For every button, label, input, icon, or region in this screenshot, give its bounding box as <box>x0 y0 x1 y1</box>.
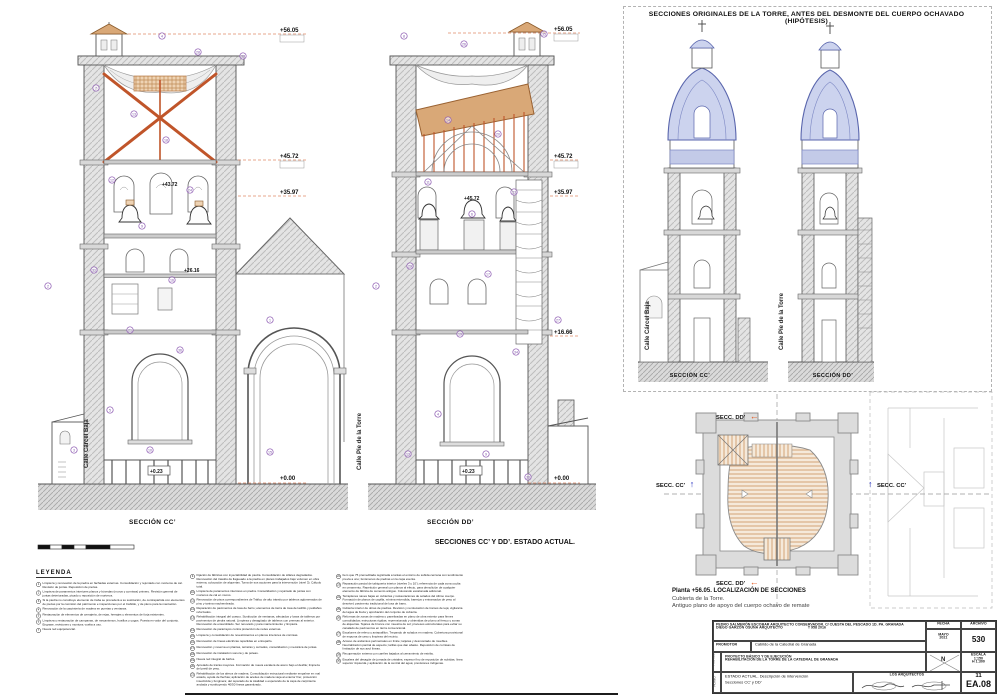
note-item: 21 Rehabilitación de los aleros de mader… <box>190 672 322 687</box>
svg-text:13: 13 <box>406 452 410 456</box>
section-arrow-blue-right-icon: ↑ <box>868 479 873 489</box>
north-arrow-icon: N <box>927 653 961 672</box>
street-label-pie-torre: Calle Pie de la Torre <box>357 413 363 470</box>
plano-line1: ESTADO ACTUAL. Descripción de intervenci… <box>725 675 849 680</box>
legend-item-number: 2 <box>36 591 41 596</box>
note-number: 18 <box>190 652 195 657</box>
note-item: 13 Rehabilitación integral del cuerpo. S… <box>190 616 322 627</box>
svg-text:9: 9 <box>141 224 143 228</box>
note-number: 24 <box>336 595 341 600</box>
note-number: 15 <box>190 634 195 639</box>
hyp-section-cc-drawing <box>638 18 768 386</box>
svg-text:9: 9 <box>485 452 487 456</box>
svg-text:7: 7 <box>95 86 97 90</box>
promotor-value: Cabildo de la Catedral de Granada <box>755 643 923 648</box>
location-plan-drawing <box>658 388 998 616</box>
svg-text:28: 28 <box>196 50 200 54</box>
note-number: 13 <box>190 616 195 621</box>
note-item: 10 Limpieza de paramentos interiores en … <box>190 590 322 598</box>
note-number: 16 <box>190 640 195 645</box>
sheet-number-cell: 11 EA.08 <box>961 672 996 693</box>
main-caption: SECCIONES CC’ Y DD’. ESTADO ACTUAL. <box>330 539 575 546</box>
svg-text:20: 20 <box>496 132 500 136</box>
svg-text:6: 6 <box>471 212 473 216</box>
note-text: Limpieza y consolidación de revestimient… <box>197 634 323 639</box>
note-text: Escalera del desagüe de jornada de crist… <box>343 658 465 666</box>
promotor-label-cell: PROMOTOR <box>713 641 751 652</box>
archivo-value: 530 <box>962 635 995 644</box>
note-number: 19 <box>190 658 195 663</box>
note-item: 29 Recuperación externa con carriles baj… <box>336 652 464 657</box>
archivo-label: ARCHIVO <box>962 622 995 626</box>
notes-column-3: 22 Ítem que 75 premeditada registrada a … <box>336 574 464 692</box>
note-item: 19 Nueva red integral de baños. <box>190 658 322 663</box>
note-item: 28 Acceso de andamios perimetrales en li… <box>336 640 464 651</box>
archivo-value-cell: 530 <box>961 629 996 652</box>
svg-text:4: 4 <box>437 412 439 416</box>
svg-text:5: 5 <box>109 408 111 412</box>
note-number: 29 <box>336 652 341 657</box>
legend-item-number: 4 <box>36 608 41 613</box>
legend-item-text: Si la piedra no constituye elemento de t… <box>43 599 187 607</box>
note-text: Rehabilitación integral del cuerpo. Sust… <box>197 616 323 627</box>
legend-item: 4 Renovación de la carpintería de madera… <box>36 608 186 613</box>
note-text: Renovación de instalación sonora y de po… <box>197 652 323 657</box>
architect2-role: ARQUITECTO <box>759 626 783 630</box>
drawing-sheet: +56.05 +45.72 +35.97 +26.16 +43.72 +0.23… <box>0 0 1000 700</box>
street-label-carcel-baja: Calle Cárcel Baja <box>84 419 90 468</box>
sec-cc-left-label: SECC. CC’ <box>656 483 685 489</box>
level-0-label: +0.00 <box>280 476 296 482</box>
legend-item-number: 6 <box>36 620 41 625</box>
svg-text:29: 29 <box>408 264 412 268</box>
section-arrow-blue-left-icon: ↑ <box>690 479 695 489</box>
svg-text:11: 11 <box>426 180 430 184</box>
north-cell: N <box>926 652 961 672</box>
legend-item-number: 3 <box>36 599 41 604</box>
escala-cell: ESCALA 1:150 H 1:300 <box>961 652 996 672</box>
signatures-icon <box>854 679 960 692</box>
svg-text:13: 13 <box>132 112 136 116</box>
legend-item: 3 Si la piedra no constituye elemento de… <box>36 599 186 607</box>
note-text: Renovación de líneas eléctricas repartid… <box>197 640 323 645</box>
plano-line2: Secciones CC’ y DD’ <box>725 681 849 686</box>
svg-text:2: 2 <box>375 284 377 288</box>
fecha-value-cell: MAYO 2021 <box>926 629 961 652</box>
section-cc-label: SECCIÓN CC’ <box>105 519 200 526</box>
legend-item-number: 7 <box>36 628 41 633</box>
svg-text:21: 21 <box>128 328 132 332</box>
note-text: Renovación y reserva en plantas, terraza… <box>197 646 323 651</box>
legend-item-text: Nueva red equipotencial. <box>43 628 187 633</box>
fecha-label: FECHA <box>927 622 960 626</box>
note-number: 17 <box>190 646 195 651</box>
sec-cc-right-label: SECC. CC’ <box>877 483 906 489</box>
proyecto-label: PROYECTO <box>713 660 716 666</box>
note-text: Reparación de pavimentos de losa de barr… <box>197 607 323 615</box>
svg-text:33: 33 <box>241 54 245 58</box>
svg-text:N: N <box>941 657 945 663</box>
notes-column-2: 9 Fijación de fábricas con inyectabilida… <box>190 574 322 692</box>
svg-text:2: 2 <box>47 284 49 288</box>
promotor-label: PROMOTOR <box>716 643 748 647</box>
note-number: 11 <box>190 599 195 604</box>
note-number: 20 <box>190 664 195 669</box>
svg-text:12: 12 <box>110 178 114 182</box>
svg-text:15: 15 <box>268 450 272 454</box>
note-number: 27 <box>336 632 341 637</box>
title-block: PEDRO SALMERÓN ESCOBAR ARQUITECTO CONSER… <box>712 620 997 694</box>
legend-item-text: Limpieza de paramentos interiores planos… <box>43 591 187 599</box>
note-item: 12 Reparación de pavimentos de losa de b… <box>190 607 322 615</box>
plan-arrow-cc-right: ↑ SECC. CC’ <box>868 474 906 492</box>
note-text: Cubierta interior de obras de piedras. R… <box>343 607 465 615</box>
legend-item-text: Restauración de elementos de cerrajería,… <box>43 614 187 619</box>
note-text: Apretado de trazas mayores. Formación de… <box>197 664 323 672</box>
plan-subtitle-1: Cubierta de la Torre. <box>672 596 932 602</box>
legend-item: 7 Nueva red equipotencial. <box>36 628 186 633</box>
svg-text:31: 31 <box>92 268 96 272</box>
svg-text:19: 19 <box>458 332 462 336</box>
note-number: 9 <box>190 574 195 579</box>
note-number: 23 <box>336 583 341 588</box>
section-dd-drawing: +56.05 +45.72 +35.97 +16.66 +45.72 +0.23… <box>368 22 596 512</box>
level-45-label: +45.72 <box>280 154 299 160</box>
proyecto-label-cell: PROYECTO <box>713 652 721 672</box>
fecha-year: 2021 <box>927 636 960 640</box>
svg-text:4: 4 <box>161 34 163 38</box>
note-item: 27 Escalones de relevo y antepalillos. T… <box>336 632 464 640</box>
note-item: 15 Limpieza y consolidación de revestimi… <box>190 634 322 639</box>
note-text: Reparación parcial de tabiquería interio… <box>343 583 465 594</box>
note-number: 14 <box>190 628 195 633</box>
note-text: Recuperación externa con carriles bajado… <box>343 652 465 657</box>
legend-item-number: 1 <box>36 582 41 587</box>
escala-value-2: H 1:300 <box>962 660 995 664</box>
note-number: 26 <box>336 616 341 621</box>
legend-title: LEYENDA <box>36 570 72 578</box>
note-number: 21 <box>190 672 195 677</box>
level-26-label: +26.16 <box>184 268 200 274</box>
proyecto-line2: REHABILITACIÓN DE LA TORRE DE LA CATEDRA… <box>725 658 921 662</box>
note-text: Escalones de relevo y antepalillos. Trep… <box>343 632 465 640</box>
archivo-header-cell: ARCHIVO <box>961 621 996 629</box>
hyp-section-cc-label: SECCIÓN CC’ <box>655 373 725 379</box>
legend-item: 5 Restauración de elementos de cerrajerí… <box>36 614 186 619</box>
svg-text:3: 3 <box>73 448 75 452</box>
sheet-code: EA.08 <box>962 679 995 689</box>
architect2-name: DIEGO GARZÓN OSUNA <box>716 626 758 630</box>
svg-text:14: 14 <box>446 118 450 122</box>
note-text: Rehabilitación de los aleros de madera. … <box>197 672 323 687</box>
bottom-rule <box>185 693 618 695</box>
svg-text:36: 36 <box>178 348 182 352</box>
fecha-header-cell: FECHA <box>926 621 961 629</box>
note-item: 11 Renovación de pisos correspondientes … <box>190 599 322 607</box>
level-0-label-dd: +0.00 <box>554 476 570 482</box>
note-number: 30 <box>336 658 341 663</box>
level-16-label-dd: +16.66 <box>554 330 573 336</box>
legend-item: 6 Limpieza y restauración de campanas, d… <box>36 620 186 628</box>
svg-text:8: 8 <box>403 34 405 38</box>
note-text: Renovación de pisos correspondientes de … <box>197 599 323 607</box>
note-number: 28 <box>336 640 341 645</box>
svg-text:1: 1 <box>269 318 271 322</box>
level-023-label: +0.23 <box>150 469 163 475</box>
legend-item-number: 5 <box>36 614 41 619</box>
svg-text:30: 30 <box>526 475 530 479</box>
plano-cell: ESTADO ACTUAL. Descripción de intervenci… <box>721 672 853 693</box>
hyp-street-pie-torre: Calle Pie de la Torre <box>779 293 785 350</box>
promotor-value-cell: Cabildo de la Catedral de Granada <box>751 641 926 652</box>
note-item: 9 Fijación de fábricas con inyectabilida… <box>190 574 322 589</box>
sec-dd-bottom-label: SECC. DD’ <box>716 581 745 587</box>
section-arrow-orange-top-icon: ← <box>750 411 759 421</box>
note-text: Renovación de pararrayos contra protecci… <box>197 628 323 633</box>
svg-text:23: 23 <box>512 190 516 194</box>
hyp-street-carcel-baja: Calle Cárcel Baja <box>645 301 651 350</box>
note-text: Terraplenes naves bajas en cubiertas y r… <box>343 595 465 606</box>
plan-arrow-dd-top: SECC. DD’ ← <box>716 406 759 424</box>
note-item: 18 Renovación de instalación sonora y de… <box>190 652 322 657</box>
proyecto-cell: PROYECTO BÁSICO Y DE EJECUCIÓN REHABILIT… <box>721 652 926 672</box>
note-item: 16 Renovación de líneas eléctricas repar… <box>190 640 322 645</box>
legend-item-text: Renovación de la carpintería de madera e… <box>43 608 187 613</box>
legend-item: 1 Limpieza y renovación de la piedra en … <box>36 582 186 590</box>
level-45-label-dd: +45.72 <box>554 154 573 160</box>
legend: LEYENDA 1 Limpieza y renovación de la pi… <box>36 561 186 686</box>
architects-cell: PEDRO SALMERÓN ESCOBAR ARQUITECTO CONSER… <box>713 621 926 641</box>
note-text: Acceso de andamios perimetrales en limit… <box>343 640 465 651</box>
note-number: 10 <box>190 590 195 595</box>
plan-arrow-cc-left: SECC. CC’ ↑ <box>656 474 694 492</box>
note-item: 30 Escalera del desagüe de jornada de cr… <box>336 658 464 666</box>
level-45-int-dd: +45.72 <box>464 196 480 202</box>
svg-text:34: 34 <box>514 350 518 354</box>
svg-text:26: 26 <box>462 42 466 46</box>
plano-label: PLANO <box>714 682 717 687</box>
svg-text:16: 16 <box>170 278 174 282</box>
signatures-cell: LOS ARQUITECTOS <box>853 672 961 693</box>
note-number: 22 <box>336 574 341 579</box>
level-023-label-dd: +0.23 <box>462 469 475 475</box>
note-text: Fijación de fábricas con inyectabilidad … <box>197 574 323 589</box>
plan-subtitle-2: Antiguo plano de apoyo del cuerpo ochavo… <box>672 603 932 609</box>
plan-title: Planta +56.05. LOCALIZACIÓN DE SECCIONES <box>672 588 932 594</box>
level-35-label-dd: +35.97 <box>554 190 573 196</box>
legend-item-text: Limpieza y renovación de la piedra en fa… <box>43 582 187 590</box>
svg-text:18: 18 <box>164 138 168 142</box>
section-dd-label: SECCIÓN DD’ <box>403 519 498 526</box>
svg-text:35: 35 <box>542 32 546 36</box>
legend-item: 2 Limpieza de paramentos interiores plan… <box>36 591 186 599</box>
svg-text:10: 10 <box>148 448 152 452</box>
note-item: 17 Renovación y reserva en plantas, terr… <box>190 646 322 651</box>
note-item: 22 Ítem que 75 premeditada registrada a … <box>336 574 464 582</box>
level-56-label: +56.05 <box>280 28 299 34</box>
plano-label-cell: PLANO <box>713 672 721 693</box>
note-item: 14 Renovación de pararrayos contra prote… <box>190 628 322 633</box>
svg-text:17: 17 <box>486 272 490 276</box>
svg-text:27: 27 <box>556 318 560 322</box>
sec-dd-top-label: SECC. DD’ <box>716 415 745 421</box>
svg-text:24: 24 <box>188 188 192 192</box>
level-35-label: +35.97 <box>280 190 299 196</box>
legend-item-text: Limpieza y restauración de campanas, de … <box>43 620 187 628</box>
hyp-section-dd-drawing <box>788 18 874 386</box>
note-item: 20 Apretado de trazas mayores. Formación… <box>190 664 322 672</box>
note-number: 12 <box>190 607 195 612</box>
note-item: 26 Reformas de zonas de madera o paneliz… <box>336 616 464 631</box>
signatures-label: LOS ARQUITECTOS <box>854 673 960 677</box>
level-43-label: +43.72 <box>162 182 178 188</box>
level-56-label-dd: +56.05 <box>554 27 573 33</box>
note-item: 23 Reparación parcial de tabiquería inte… <box>336 583 464 594</box>
note-item: 25 Cubierta interior de obras de piedras… <box>336 607 464 615</box>
note-item: 24 Terraplenes naves bajas en cubiertas … <box>336 595 464 606</box>
note-number: 25 <box>336 607 341 612</box>
scale-bar <box>36 542 146 554</box>
note-text: Limpieza de paramentos interiores en pie… <box>197 590 323 598</box>
hyp-section-dd-label: SECCIÓN DD’ <box>798 373 868 379</box>
phone: T 958 2016 <box>808 626 826 630</box>
note-text: Reformas de zonas de madera o panelizada… <box>343 616 465 631</box>
note-text: Nueva red integral de baños. <box>197 658 323 663</box>
section-arrow-orange-bottom-icon: ← <box>750 577 759 587</box>
legend-column-1: 1 Limpieza y renovación de la piedra en … <box>36 582 186 633</box>
note-text: Ítem que 75 premeditada registrada a tan… <box>343 574 465 582</box>
